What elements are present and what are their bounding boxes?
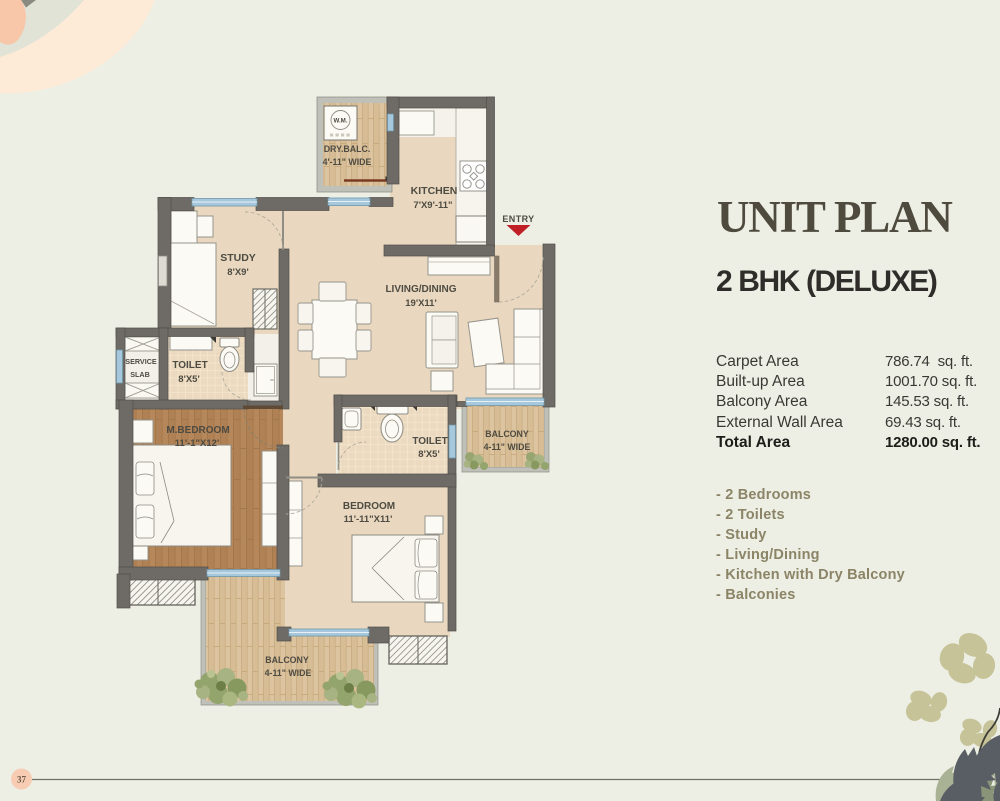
svg-text:SERVICE: SERVICE	[125, 357, 157, 366]
svg-text:W.M.: W.M.	[333, 118, 347, 125]
svg-text:M.BEDROOM: M.BEDROOM	[166, 425, 229, 436]
svg-text:4-11" WIDE: 4-11" WIDE	[265, 668, 312, 678]
svg-text:BALCONY: BALCONY	[265, 655, 309, 665]
svg-text:DRY.BALC.: DRY.BALC.	[324, 144, 371, 154]
svg-text:ENTRY: ENTRY	[502, 214, 534, 224]
svg-text:BEDROOM: BEDROOM	[343, 501, 395, 512]
svg-text:STUDY: STUDY	[220, 252, 256, 264]
svg-text:TOILET: TOILET	[172, 360, 207, 371]
svg-text:7'X9'-11": 7'X9'-11"	[413, 200, 452, 211]
svg-text:TOILET: TOILET	[412, 436, 447, 447]
svg-text:37: 37	[17, 775, 27, 785]
svg-text:11'-1"X12': 11'-1"X12'	[175, 438, 219, 449]
svg-text:11'-11"X11': 11'-11"X11'	[344, 514, 393, 525]
svg-text:BALCONY: BALCONY	[485, 429, 529, 439]
svg-text:4'-11" WIDE: 4'-11" WIDE	[323, 157, 372, 167]
svg-text:8'X9': 8'X9'	[227, 267, 248, 278]
svg-text:4-11" WIDE: 4-11" WIDE	[484, 442, 531, 452]
svg-text:8'X5': 8'X5'	[418, 449, 439, 460]
svg-text:19'X11': 19'X11'	[405, 298, 436, 309]
svg-text:LIVING/DINING: LIVING/DINING	[385, 284, 456, 295]
svg-text:KITCHEN: KITCHEN	[411, 185, 458, 197]
svg-text:SLAB: SLAB	[130, 370, 150, 379]
svg-text:8'X5': 8'X5'	[178, 374, 199, 385]
